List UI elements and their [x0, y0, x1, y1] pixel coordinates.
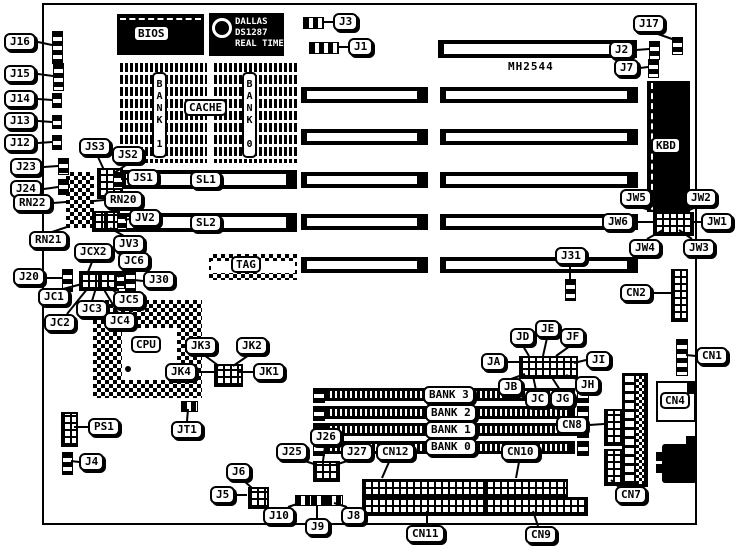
j1-header [309, 42, 339, 54]
callout-j27: J27 [341, 443, 373, 461]
callout-j13: J13 [4, 112, 36, 130]
callout-rn20: RN20 [104, 191, 143, 209]
cache-label: CACHE [184, 99, 227, 116]
callout-cn11: CN11 [406, 525, 445, 543]
isa-slot-row3-right [440, 172, 638, 188]
callout-cn12: CN12 [376, 443, 415, 461]
clock-icon [212, 18, 232, 38]
bios-chip-label: BIOS [133, 25, 170, 42]
callout-js1: JS1 [127, 169, 159, 187]
simm-bank3-label: BANK 3 [423, 386, 475, 404]
callout-jw6: JW6 [602, 213, 634, 231]
callout-j20: J20 [13, 268, 45, 286]
isa-slot-row4-left [301, 214, 428, 230]
ja-ji-jumper-block [519, 356, 578, 379]
j8-header [326, 495, 343, 506]
j16-header [52, 31, 63, 64]
isa-slot-row5-left [301, 257, 428, 273]
callout-jk4: JK4 [165, 363, 197, 381]
callout-j26: J26 [310, 428, 342, 446]
callout-ja: JA [481, 353, 506, 371]
callout-j2: J2 [609, 41, 634, 59]
callout-jk3: JK3 [185, 337, 217, 355]
callout-jc3: JC3 [76, 300, 108, 318]
din-tab-bottom [656, 464, 662, 473]
callout-jv3: JV3 [113, 235, 145, 253]
callout-jw4: JW4 [629, 239, 661, 257]
callout-cn10: CN10 [501, 443, 540, 461]
callout-jw1: JW1 [701, 213, 733, 231]
j17-header [672, 37, 683, 55]
sl2-label: SL2 [190, 214, 222, 232]
callout-rn21: RN21 [29, 231, 68, 249]
cn2-connector [671, 269, 688, 322]
tag-chip-label: TAG [231, 256, 261, 273]
callout-cn2: CN2 [620, 284, 652, 302]
cn4-label: CN4 [660, 392, 690, 409]
isa-slot-row2-left [301, 129, 428, 145]
simm-latch-right-0 [577, 441, 589, 456]
cn10-connector [484, 479, 568, 498]
cn12-connector [362, 479, 487, 498]
callout-ps1: PS1 [88, 418, 120, 436]
callout-jw2: JW2 [685, 189, 717, 207]
rtc-chip: DALLAS DS1287 REAL TIME [209, 13, 284, 56]
js1-jumper [113, 172, 123, 189]
callout-jc5: JC5 [113, 291, 145, 309]
rtc-chip-text: DALLAS DS1287 REAL TIME [235, 17, 284, 50]
rtc-line2: DS1287 [235, 28, 284, 39]
simm-bank1-label: BANK 1 [425, 421, 477, 439]
edge-connector-pins [625, 376, 634, 484]
callout-js2: JS2 [112, 146, 144, 164]
edge-connector [622, 373, 648, 487]
callout-jk2: JK2 [236, 337, 268, 355]
j13-header [52, 115, 62, 129]
callout-je: JE [535, 320, 560, 338]
j23-header [58, 158, 69, 175]
callout-j6: J6 [226, 463, 251, 481]
isa-slot-row5-right [440, 257, 638, 273]
callout-jb: JB [498, 378, 523, 396]
callout-jc: JC [525, 390, 550, 408]
cn7-connector [604, 449, 622, 486]
din-tab-top [656, 452, 662, 461]
j7-header [648, 59, 659, 78]
jk-jumper-block [214, 364, 243, 387]
simm-bank2-label: BANK 2 [425, 404, 477, 422]
cpu-pin1-dot [125, 366, 131, 372]
isa-slot-row3-left [301, 172, 428, 188]
sl1-label: SL1 [190, 171, 222, 189]
callout-jw3: JW3 [683, 239, 715, 257]
rtc-line1: DALLAS [235, 17, 284, 28]
callout-jc6: JC6 [118, 252, 150, 270]
isa-slot-row1-left [301, 87, 428, 103]
callout-jw5: JW5 [620, 189, 652, 207]
callout-jc2: JC2 [44, 314, 76, 332]
callout-j31: J31 [555, 247, 587, 265]
callout-j3: J3 [333, 13, 358, 31]
callout-jg: JG [550, 390, 575, 408]
j25-j27-jumper-block [313, 461, 340, 482]
callout-rn22: RN22 [13, 194, 52, 212]
jv2-jumper [117, 213, 127, 230]
j9-header [311, 495, 327, 506]
callout-j5: J5 [210, 486, 235, 504]
callout-j16: J16 [4, 33, 36, 51]
simm-latch-left-3 [313, 388, 325, 403]
motherboard-diagram: BIOS DALLAS DS1287 REAL TIME BANK 1 BANK… [0, 0, 743, 549]
bios-chip-notch [120, 18, 201, 20]
cpu-label: CPU [131, 336, 161, 353]
cache-bank0-label: BANK 0 [242, 72, 257, 158]
callout-jc1: JC1 [38, 288, 70, 306]
callout-jv2: JV2 [129, 209, 161, 227]
callout-j4: J4 [79, 453, 104, 471]
callout-ji: JI [586, 351, 611, 369]
cn9-connector [484, 497, 588, 516]
j24-header [58, 179, 69, 195]
j30-header [125, 269, 136, 292]
kbd-chip-label: KBD [651, 137, 681, 154]
simm-bank0-label: BANK 0 [425, 438, 477, 456]
callout-j23: J23 [10, 158, 42, 176]
callout-j10: J10 [263, 507, 295, 525]
jcx2-jumper-block-a [79, 271, 100, 291]
isa-slot-row0-right [438, 40, 637, 58]
callout-j7: J7 [614, 59, 639, 77]
j12-header [52, 135, 62, 150]
callout-jf: JF [560, 328, 585, 346]
callout-jh: JH [575, 376, 600, 394]
callout-jc4: JC4 [104, 312, 136, 330]
j31-header [565, 279, 576, 301]
keyboard-din-connector [662, 444, 697, 483]
callout-j25: J25 [276, 443, 308, 461]
callout-j8: J8 [341, 507, 366, 525]
callout-cn8: CN8 [556, 416, 588, 434]
cn4-connector-notch [687, 381, 696, 394]
rn21-rn22-network [66, 172, 94, 228]
callout-j15: J15 [4, 65, 36, 83]
ps1-connector [61, 412, 78, 447]
isa-slot-row1-right [440, 87, 638, 103]
callout-jt1: JT1 [171, 421, 203, 439]
edge-connector-pins2 [636, 376, 644, 484]
callout-cn9: CN9 [525, 526, 557, 544]
callout-jcx2: JCX2 [74, 243, 113, 261]
jt1-header [181, 401, 198, 412]
callout-j30: J30 [143, 271, 175, 289]
callout-js3: JS3 [79, 138, 111, 156]
j10-header [295, 495, 312, 506]
cn11-connector [362, 497, 490, 516]
cache-bank1-label: BANK 1 [152, 72, 167, 158]
callout-jk1: JK1 [253, 363, 285, 381]
j4-header [62, 452, 73, 475]
jw-jumper-block [653, 212, 694, 236]
j2-header [649, 41, 660, 60]
cn1-header [676, 339, 688, 376]
callout-j1: J1 [348, 38, 373, 56]
rtc-line3: REAL TIME [235, 39, 284, 50]
j15-header [53, 63, 64, 91]
callout-cn1: CN1 [696, 347, 728, 365]
j5-j6-jumper-block [248, 487, 269, 509]
simm-latch-left-2 [313, 406, 325, 421]
keyboard-din-connector-step [686, 436, 697, 446]
callout-j17: J17 [633, 15, 665, 33]
callout-jd: JD [510, 328, 535, 346]
jc6-header [116, 271, 125, 289]
callout-j9: J9 [305, 518, 330, 536]
callout-cn7: CN7 [615, 486, 647, 504]
j14-header [52, 93, 62, 108]
isa-slot-row2-right [440, 129, 638, 145]
board-part-number: MH2544 [508, 60, 554, 73]
j3-header [303, 17, 324, 29]
cn8-connector [604, 409, 622, 446]
callout-j12: J12 [4, 134, 36, 152]
callout-j14: J14 [4, 90, 36, 108]
